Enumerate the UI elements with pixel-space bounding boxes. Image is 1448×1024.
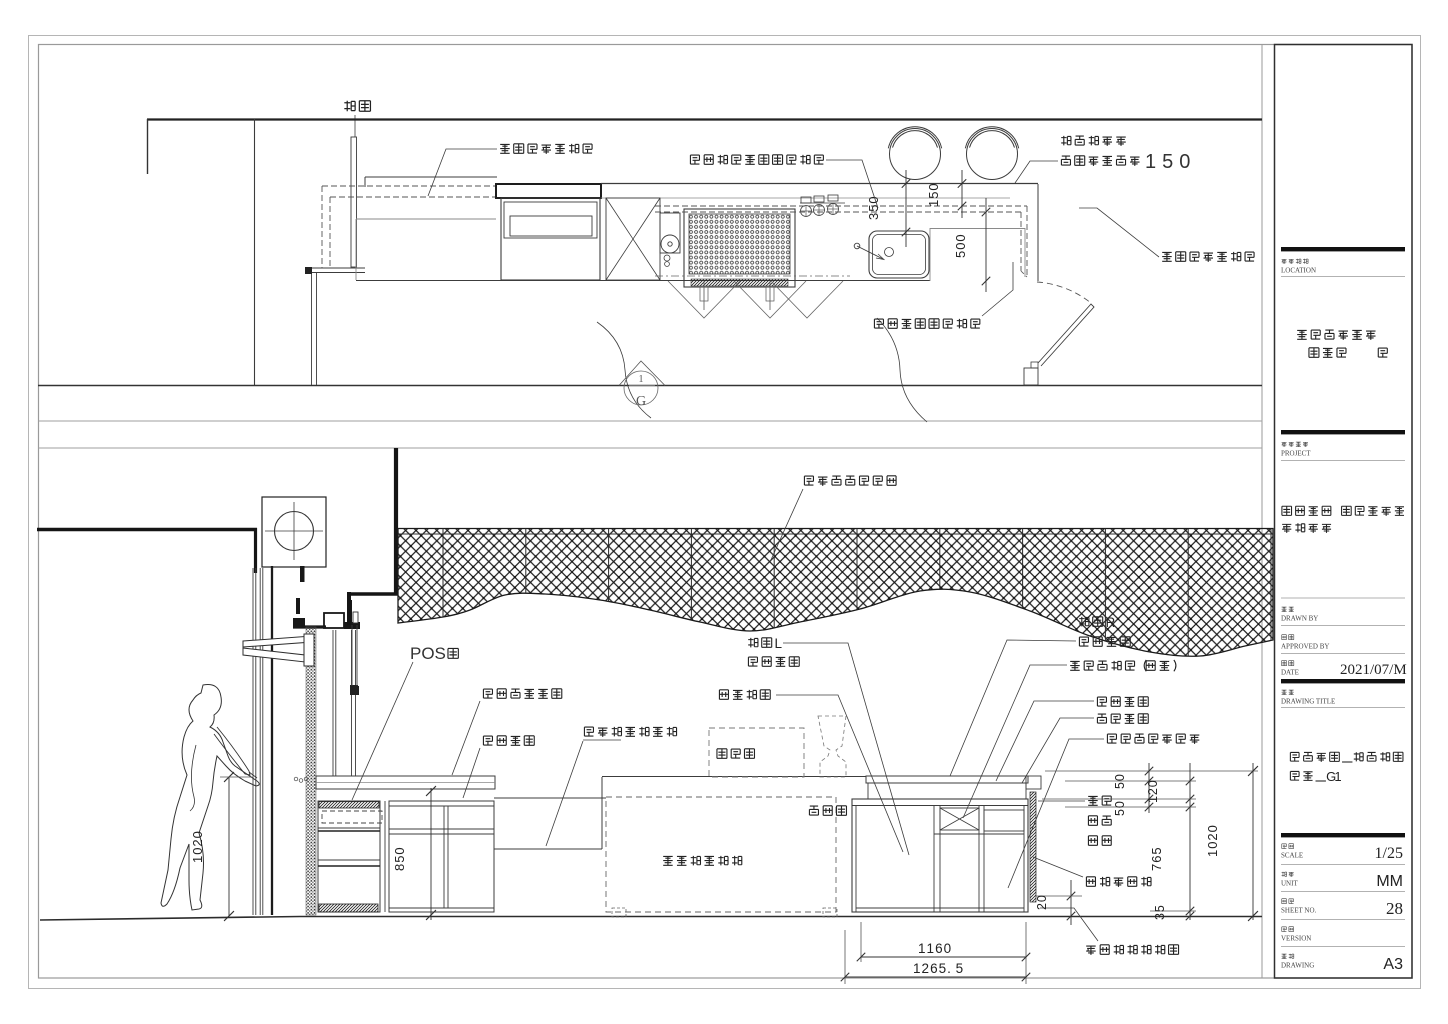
svg-text:5: 5 [1113,782,1127,789]
svg-text:5: 5 [956,961,964,976]
svg-text:0: 0 [1113,774,1127,781]
svg-text:APPROVED BY: APPROVED BY [1281,643,1329,651]
svg-text:0: 0 [1035,895,1049,902]
svg-text:LOCATION: LOCATION [1281,267,1316,275]
svg-text:2: 2 [1035,903,1049,910]
svg-text:SCALE: SCALE [1281,852,1303,860]
svg-text:DRAWN BY: DRAWN BY [1281,615,1318,623]
svg-text:1: 1 [1334,769,1341,784]
svg-text:0: 0 [1146,780,1160,787]
svg-text:DRAWING TITLE: DRAWING TITLE [1281,698,1335,706]
svg-text:5: 5 [1149,847,1164,854]
svg-text:L: L [775,636,783,651]
svg-text:5: 5 [939,961,947,976]
svg-text:.: . [947,961,951,976]
svg-text:5: 5 [1153,905,1167,912]
svg-text:5: 5 [953,251,968,258]
svg-text:5: 5 [1113,809,1127,816]
svg-text:0: 0 [926,183,941,190]
svg-text:5: 5 [866,205,881,212]
svg-text:2: 2 [190,839,205,846]
svg-text:2: 2 [1146,788,1160,795]
svg-text:3: 3 [1153,913,1167,920]
svg-text:0: 0 [953,234,968,241]
svg-text:1: 1 [926,200,941,207]
svg-text:6: 6 [1149,856,1164,863]
svg-text:6: 6 [930,961,938,976]
svg-text:0: 0 [190,831,205,838]
svg-text:DRAWING: DRAWING [1281,962,1314,970]
svg-text:28: 28 [1386,899,1403,918]
svg-text:0: 0 [953,243,968,250]
svg-text:1: 1 [927,941,935,956]
svg-text:3: 3 [866,213,881,220]
svg-text:UNIT: UNIT [1281,880,1298,888]
svg-text:VERSION: VERSION [1281,935,1311,943]
svg-text:SHEET NO.: SHEET NO. [1281,907,1317,915]
svg-text:1: 1 [190,856,205,863]
svg-text:POS: POS [410,644,446,663]
svg-text:6: 6 [935,941,943,956]
svg-text:0: 0 [1113,801,1127,808]
svg-text:A3: A3 [1383,956,1403,973]
svg-text:2: 2 [1205,833,1220,840]
svg-text:R: R [1106,615,1116,630]
svg-text:1: 1 [918,941,926,956]
svg-text:1: 1 [1146,796,1160,803]
svg-text:MM: MM [1376,873,1403,890]
svg-text:PROJECT: PROJECT [1281,450,1311,458]
svg-text:1: 1 [1205,850,1220,857]
svg-text:8: 8 [392,864,407,871]
svg-text:0: 0 [190,848,205,855]
svg-text:150: 150 [1145,151,1196,173]
svg-text:0: 0 [392,847,407,854]
svg-text:0: 0 [1205,842,1220,849]
svg-text:1: 1 [639,374,644,385]
svg-text:0: 0 [1205,825,1220,832]
svg-text:5: 5 [926,192,941,199]
svg-text:DATE: DATE [1281,669,1299,677]
svg-text:7: 7 [1149,864,1164,871]
svg-text:5: 5 [392,856,407,863]
svg-text:1/25: 1/25 [1375,845,1403,862]
svg-text:0: 0 [944,941,952,956]
svg-text:G: G [636,394,646,409]
svg-text:1: 1 [913,961,921,976]
svg-text:2: 2 [922,961,930,976]
svg-text:0: 0 [866,196,881,203]
svg-text:2021/07/M: 2021/07/M [1340,662,1407,678]
